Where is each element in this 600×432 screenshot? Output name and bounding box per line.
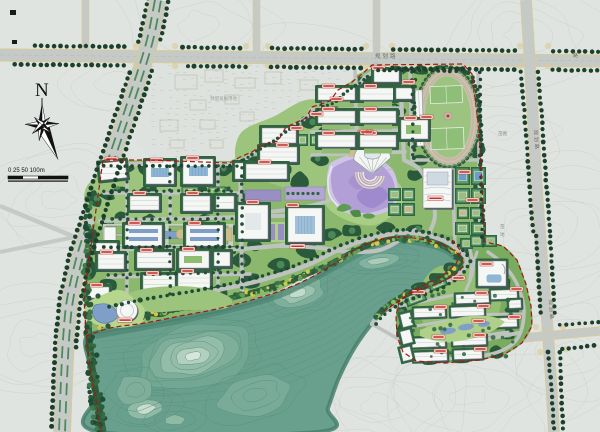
svg-text:规划路: 规划路	[547, 300, 555, 321]
svg-text:规划路: 规划路	[375, 52, 398, 60]
svg-text:N: N	[35, 80, 49, 101]
svg-text:中心喷泉: 中心喷泉	[357, 128, 373, 134]
svg-text:预留发展用地: 预留发展用地	[210, 95, 237, 102]
svg-text:规划路: 规划路	[532, 130, 540, 151]
svg-text:路: 路	[573, 52, 578, 59]
svg-text:地: 地	[500, 231, 505, 237]
svg-text:0 25 50 100m: 0 25 50 100m	[8, 168, 45, 174]
